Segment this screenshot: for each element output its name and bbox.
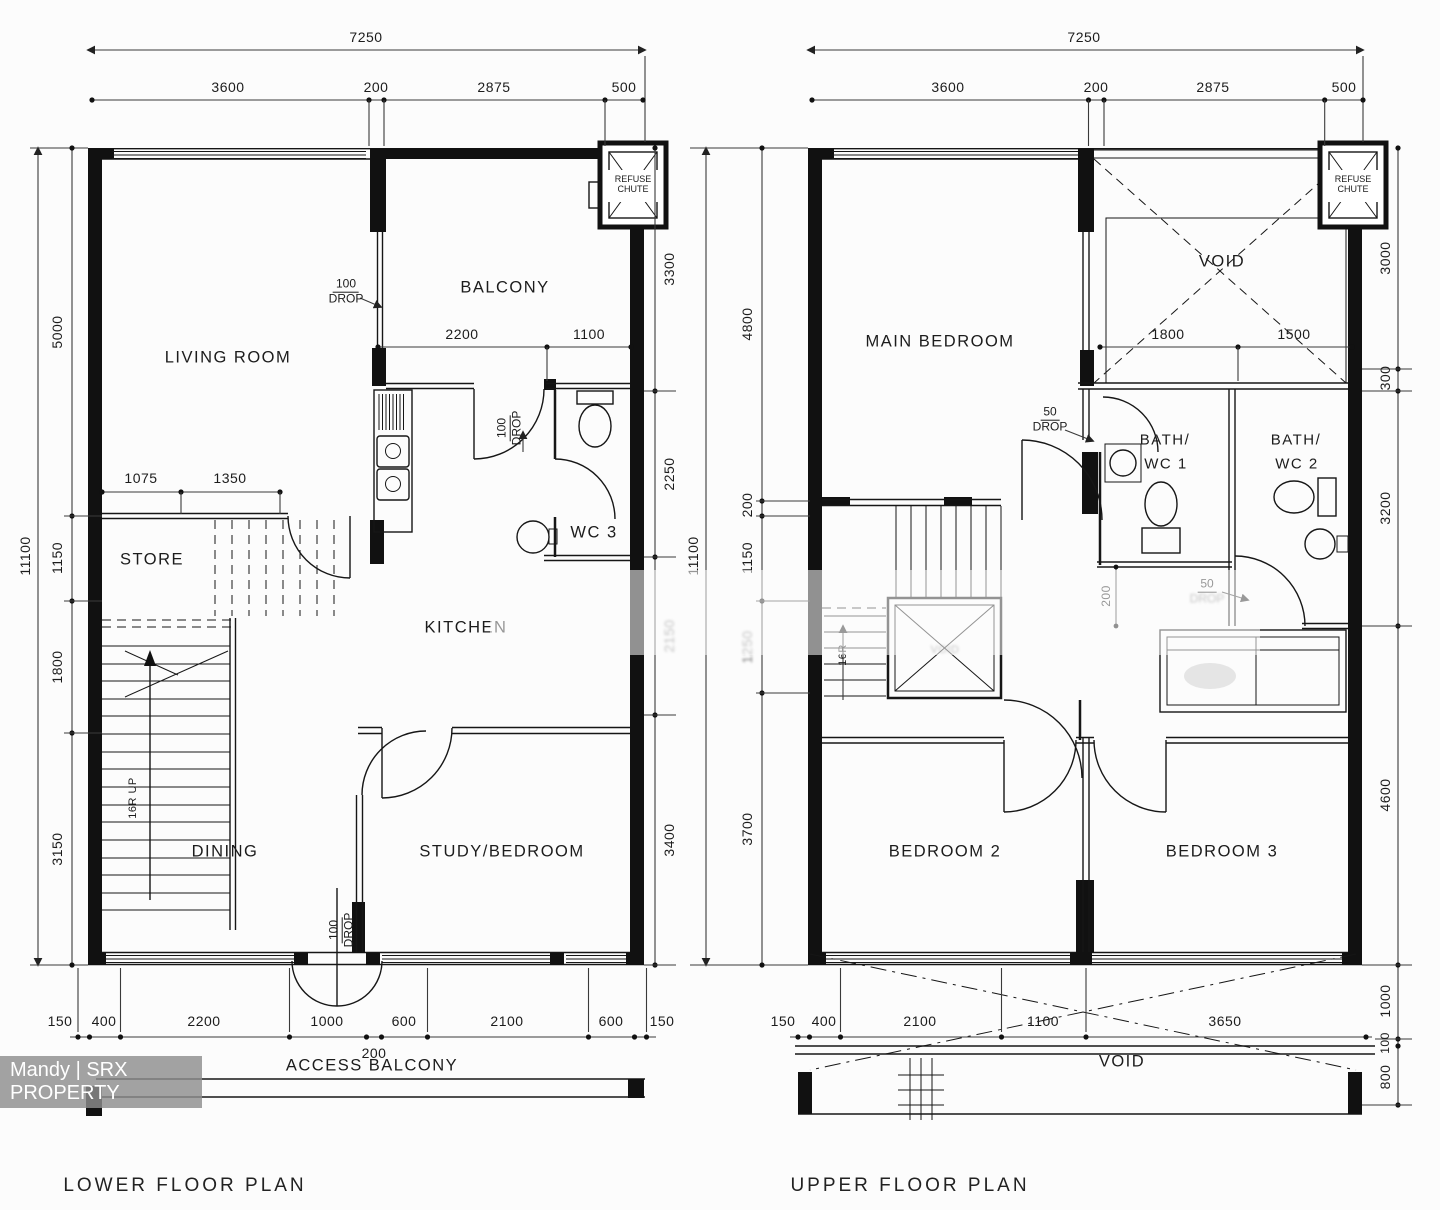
stairs-label-lower: 16R UP [127, 777, 139, 819]
dim-upper-left: 3700 [739, 812, 755, 845]
dim-upper-void: 1800 [1151, 326, 1184, 342]
room-label-wc3: WC 3 [570, 524, 617, 543]
drop-value: 50 [1040, 406, 1059, 421]
dim-lower-right: 3400 [661, 823, 677, 856]
void-label-stair: VOID [931, 644, 960, 656]
dim-upper-right: 100 [1378, 1032, 1392, 1054]
dim-upper-right: 3000 [1377, 241, 1393, 274]
dim-lower-bottom: 2100 [490, 1013, 523, 1029]
dim-upper-left-overall: 11100 [685, 536, 701, 575]
dim-lower-bottom: 400 [92, 1013, 117, 1029]
dim-upper-left: 4800 [739, 307, 755, 340]
room-label-bath2: WC 2 [1275, 456, 1319, 473]
room-label-bath1: WC 1 [1144, 456, 1188, 473]
dim-lower-bottom: 2200 [187, 1013, 220, 1029]
dim-lower-bottom-sub: 200 [362, 1045, 387, 1061]
dim-lower-left: 5000 [49, 315, 65, 348]
dim-upper-bottom: 3650 [1208, 1013, 1241, 1029]
dim-lower-right: 2150 [661, 619, 677, 652]
dim-upper-right: 1000 [1377, 984, 1393, 1017]
drop-value: 50 [1197, 578, 1216, 593]
room-label-main-bedroom: MAIN BEDROOM [865, 333, 1014, 352]
room-label-bedroom3: BEDROOM 3 [1166, 843, 1279, 862]
room-label-bath2: BATH/ [1271, 432, 1322, 449]
drop-word: DROP [1033, 421, 1068, 435]
dim-lower-left-overall: 11100 [17, 536, 33, 575]
upper-plan-windows [826, 150, 1342, 963]
drop-value: 100 [328, 917, 343, 943]
room-label-study-bedroom: STUDY/BEDROOM [419, 843, 584, 862]
drop-note-bath1: 50 DROP [1033, 406, 1068, 435]
dim-upper-right: 4600 [1377, 778, 1393, 811]
dim-upper-left: 200 [739, 493, 755, 518]
dim-upper-bottom: 400 [812, 1013, 837, 1029]
drop-value: 100 [333, 278, 359, 293]
dim-upper-right: 800 [1377, 1065, 1393, 1090]
watermark-text: Mandy | SRX PROPERTY [10, 1059, 202, 1105]
floorplan-page: LIVING ROOM BALCONY STORE KITCHEN WC 3 D… [0, 0, 1440, 1210]
lower-plan-title: LOWER FLOOR PLAN [63, 1175, 306, 1197]
dim-upper-left: 1150 [739, 542, 755, 574]
lower-plan-kitchen-fixtures [374, 390, 412, 532]
dim-upper-right: 300 [1377, 366, 1393, 391]
dim-store: 1075 [124, 470, 157, 486]
drop-note-balcony: 100 DROP [329, 278, 364, 307]
room-label-balcony: BALCONY [460, 279, 549, 298]
dim-lower-top-overall: 7250 [349, 29, 382, 45]
dim-lower-right: 3300 [661, 252, 677, 285]
dim-store: 1350 [213, 470, 246, 486]
dim-upper-void: 1500 [1277, 326, 1310, 342]
void-label-bottom: VOID [1099, 1053, 1145, 1072]
dim-upper-top-overall: 7250 [1067, 29, 1100, 45]
dim-upper-top: 3600 [931, 79, 964, 95]
dim-lower-bottom: 150 [48, 1013, 73, 1029]
drop-word: DROP [511, 411, 525, 446]
dim-upper-top: 500 [1332, 79, 1357, 95]
dim-lower-bottom: 600 [392, 1013, 417, 1029]
dim-lower-left: 1800 [49, 650, 65, 683]
dim-upper-corridor: 200 [1099, 585, 1113, 607]
dim-balcony: 2200 [445, 326, 478, 342]
watermark: Mandy | SRX PROPERTY [0, 1056, 202, 1108]
room-label-bath1: BATH/ [1140, 432, 1191, 449]
stairs-label-upper: 16R [837, 644, 849, 666]
room-label-living: LIVING ROOM [165, 349, 292, 368]
upper-plan-wardrobe [1160, 630, 1346, 712]
dim-lower-left: 1150 [49, 542, 65, 574]
drop-note-kitchen: 100 DROP [496, 411, 525, 446]
void-label-top: VOID [1199, 253, 1245, 272]
dim-lower-bottom: 600 [599, 1013, 624, 1029]
dim-upper-bottom: 150 [771, 1013, 796, 1029]
dim-lower-right: 2250 [661, 457, 677, 490]
drop-word: DROP [343, 913, 357, 948]
dim-lower-bottom: 1000 [310, 1013, 343, 1029]
dim-upper-bottom: 2100 [903, 1013, 936, 1029]
drop-word: DROP [1190, 593, 1225, 607]
dim-upper-right: 3200 [1377, 491, 1393, 524]
upper-plan-title: UPPER FLOOR PLAN [790, 1175, 1029, 1197]
drop-value: 100 [496, 415, 511, 441]
dim-lower-left: 3150 [49, 832, 65, 865]
dim-lower-bottom: 150 [650, 1013, 675, 1029]
upper-plan-dimensions [690, 50, 1412, 1108]
dim-upper-top: 2875 [1196, 79, 1229, 95]
refuse-chute-label-lower: REFUSE CHUTE [605, 175, 661, 195]
dim-upper-bottom: 1100 [1027, 1013, 1059, 1029]
dim-lower-top: 2875 [477, 79, 510, 95]
dim-upper-top: 200 [1084, 79, 1109, 95]
refuse-chute-label-upper: REFUSE CHUTE [1325, 175, 1381, 195]
dim-balcony: 1100 [573, 326, 605, 342]
dim-lower-top: 200 [364, 79, 389, 95]
upper-plan-stairs [822, 500, 1001, 701]
drop-word: DROP [329, 293, 364, 307]
dim-lower-top: 500 [612, 79, 637, 95]
drop-note-corridor: 50 DROP [1190, 578, 1225, 607]
room-label-dining: DINING [192, 843, 259, 862]
dim-upper-left: 1250 [739, 630, 755, 663]
lower-plan-dimensions [30, 50, 676, 1040]
room-label-kitchen: KITCHEN [425, 619, 508, 638]
dim-lower-top: 3600 [211, 79, 244, 95]
drop-note-lower-door: 100 DROP [328, 913, 357, 948]
room-label-store: STORE [120, 551, 184, 570]
room-label-bedroom2: BEDROOM 2 [889, 843, 1002, 862]
